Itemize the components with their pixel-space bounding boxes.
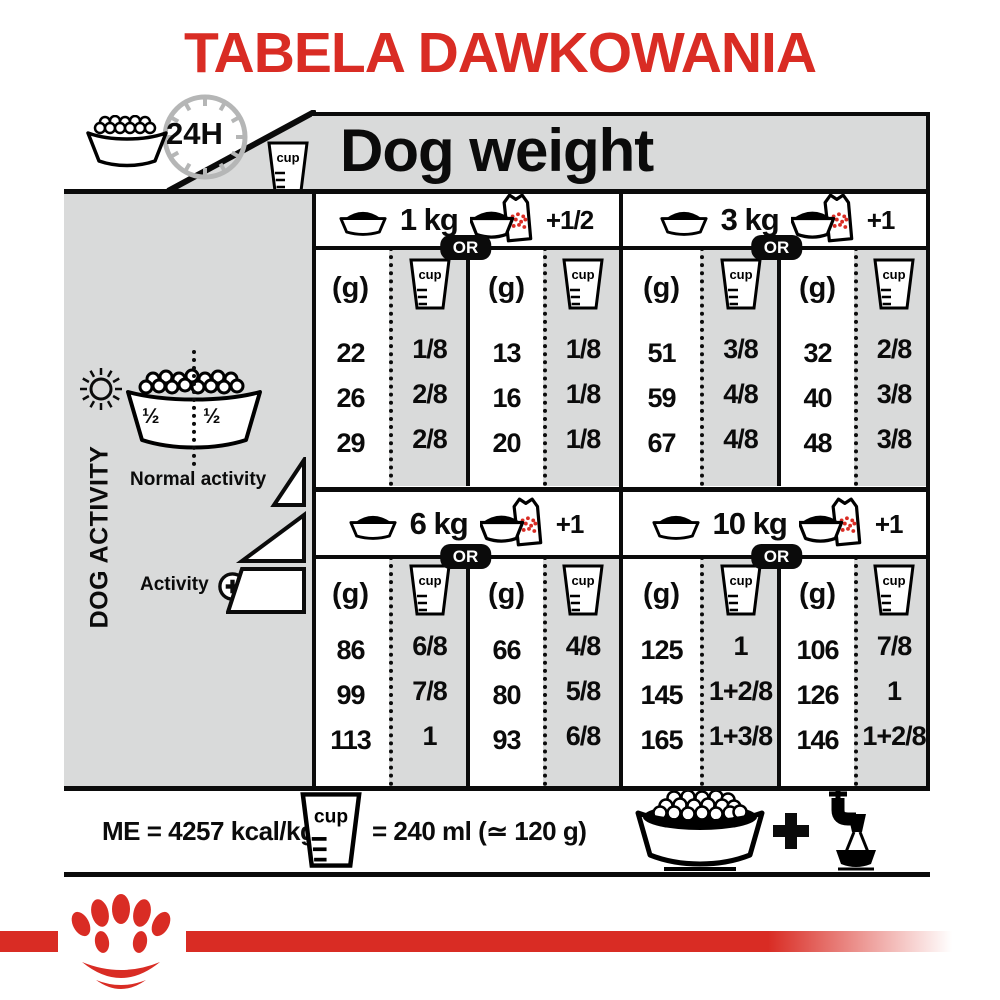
dose-grid: (g) 86 99 113 cup 6/8 7/8 1 (g) 66 80 93…	[312, 556, 619, 786]
quadrant-6kg: 6 kg +1 OR (g) 86 99 113 cup 6/8 7/8 1 (…	[312, 492, 619, 786]
weight-header: 3 kg +1 OR	[623, 193, 930, 247]
activity-label: Activity	[140, 574, 209, 596]
dose-cell: 66	[470, 628, 543, 673]
rule-mid-vertical	[619, 193, 623, 786]
cup-icon: cup	[872, 257, 916, 311]
svg-text:cup: cup	[571, 267, 594, 282]
cup-icon: cup	[264, 140, 312, 194]
dose-cell: 6/8	[547, 714, 619, 759]
cup-icon: cup	[408, 257, 452, 311]
dose-cell: 5/8	[547, 669, 619, 714]
dose-cell: 32	[781, 331, 854, 376]
dose-grid: (g) 51 59 67 cup 3/8 4/8 4/8 (g) 32 40 4…	[623, 247, 930, 486]
dose-cell: 99	[312, 673, 389, 718]
weight-label: 1 kg	[400, 202, 458, 238]
dose-cell: 4/8	[704, 417, 777, 462]
dose-cell: 3/8	[704, 327, 777, 372]
table-left-border	[312, 189, 316, 786]
plus-icon	[770, 810, 812, 852]
dose-cell: 16	[470, 376, 543, 421]
dry-bowl-icon	[659, 204, 709, 237]
grams-header: (g)	[312, 556, 389, 628]
dose-cell: 6/8	[393, 624, 466, 669]
dose-cell: 2/8	[858, 327, 930, 372]
cup-icon: cup	[296, 790, 366, 870]
half-divider-dotted-line	[192, 350, 196, 466]
svg-text:cup: cup	[729, 267, 752, 282]
dose-cell: 1+2/8	[858, 714, 930, 759]
bowl-pouch-icon	[799, 497, 863, 548]
dose-cell: 1/8	[547, 372, 619, 417]
brand-stripe	[0, 931, 58, 952]
dose-grid: (g) 22 26 29 cup 1/8 2/8 2/8 (g) 13 16 2…	[312, 247, 619, 486]
weight-header: 10 kg +1 OR	[623, 492, 930, 556]
dose-cell: 1/8	[393, 327, 466, 372]
bowl-pouch-icon	[791, 193, 855, 244]
or-badge: OR	[751, 235, 803, 260]
bowl-pouch-icon	[480, 497, 544, 548]
dose-cell: 7/8	[393, 669, 466, 714]
dose-cell: 165	[623, 718, 700, 763]
dose-cell: 7/8	[858, 624, 930, 669]
cup-icon: cup	[872, 563, 916, 617]
dose-cell: 22	[312, 331, 389, 376]
half-left-label: ½	[142, 405, 160, 429]
svg-text:cup: cup	[314, 807, 348, 828]
dose-cell: 3/8	[858, 372, 930, 417]
svg-text:cup: cup	[418, 573, 441, 588]
page-title: TABELA DAWKOWANIA	[0, 20, 1000, 86]
weight-label: 3 kg	[721, 202, 779, 238]
weight-header: 1 kg +1/2 OR	[312, 193, 619, 247]
cup-icon: cup	[561, 257, 605, 311]
table-right-border	[926, 112, 930, 786]
weight-header: 6 kg +1 OR	[312, 492, 619, 556]
dose-cell: 40	[781, 376, 854, 421]
cup-icon: cup	[719, 257, 763, 311]
cup-icon: cup	[561, 563, 605, 617]
moon-icon	[264, 370, 300, 410]
dose-cell: 1+2/8	[704, 669, 777, 714]
grams-header: (g)	[623, 247, 700, 325]
dose-cell: 4/8	[704, 372, 777, 417]
footer-top-rule	[64, 786, 930, 791]
weight-label: 6 kg	[410, 506, 468, 542]
dose-cell: 20	[470, 421, 543, 466]
quadrant-10kg: 10 kg +1 OR (g) 125 145 165 cup 1 1+2/8 …	[623, 492, 930, 786]
svg-text:cup: cup	[418, 267, 441, 282]
svg-text:cup: cup	[882, 267, 905, 282]
dose-cell: 1	[393, 714, 466, 759]
dry-bowl-icon	[338, 204, 388, 237]
quadrant-1kg: 1 kg +1/2 OR (g) 22 26 29 cup 1/8 2/8 2/…	[312, 193, 619, 486]
activity-level-ramps	[226, 457, 308, 615]
svg-text:cup: cup	[571, 573, 594, 588]
grams-header: (g)	[623, 556, 700, 628]
weight-label: 10 kg	[713, 506, 787, 542]
svg-text:cup: cup	[729, 573, 752, 588]
dose-cell: 1/8	[547, 417, 619, 462]
water-faucet-icon	[818, 786, 900, 874]
dose-cell: 51	[623, 331, 700, 376]
dose-cell: 1+3/8	[704, 714, 777, 759]
dose-cell: 106	[781, 628, 854, 673]
dose-cell: 2/8	[393, 372, 466, 417]
svg-text:cup: cup	[882, 573, 905, 588]
dose-cell: 93	[470, 718, 543, 763]
dose-cell: 86	[312, 628, 389, 673]
pouch-extra-label: +1/2	[546, 205, 593, 236]
pouch-extra-label: +1	[556, 509, 584, 540]
dose-cell: 4/8	[547, 624, 619, 669]
dry-bowl-icon	[651, 508, 701, 541]
dose-cell: 1	[704, 624, 777, 669]
dose-cell: 2/8	[393, 417, 466, 462]
24h-label: 24H	[166, 116, 223, 152]
pouch-extra-label: +1	[867, 205, 895, 236]
royal-canin-paw-logo	[54, 892, 188, 1000]
dose-cell: 3/8	[858, 417, 930, 462]
cup-icon: cup	[408, 563, 452, 617]
dose-cell: 1/8	[547, 327, 619, 372]
dog-weight-label: Dog weight	[340, 116, 653, 185]
dose-cell: 48	[781, 421, 854, 466]
dose-cell: 145	[623, 673, 700, 718]
dose-cell: 113	[312, 718, 389, 763]
cup-icon: cup	[719, 563, 763, 617]
pouch-extra-label: +1	[875, 509, 903, 540]
or-badge: OR	[751, 544, 803, 569]
svg-text:cup: cup	[276, 150, 299, 165]
cup-equivalence-label: = 240 ml (≃ 120 g)	[372, 816, 586, 847]
dose-cell: 26	[312, 376, 389, 421]
kibble-bowl-icon	[630, 789, 770, 873]
grams-header: (g)	[312, 247, 389, 325]
dose-grid: (g) 125 145 165 cup 1 1+2/8 1+3/8 (g) 10…	[623, 556, 930, 786]
dose-cell: 1	[858, 669, 930, 714]
brand-stripe	[186, 931, 952, 952]
half-right-label: ½	[203, 405, 221, 429]
rule-header-bottom	[64, 189, 930, 194]
or-badge: OR	[440, 544, 492, 569]
dose-cell: 126	[781, 673, 854, 718]
me-energy-label: ME = 4257 kcal/kg	[102, 816, 315, 847]
dose-cell: 13	[470, 331, 543, 376]
dose-cell: 67	[623, 421, 700, 466]
or-badge: OR	[440, 235, 492, 260]
dry-bowl-icon	[348, 508, 398, 541]
dose-cell: 59	[623, 376, 700, 421]
kibble-bowl-icon	[82, 115, 172, 169]
dog-activity-axis-label: DOG ACTIVITY	[86, 446, 115, 629]
quadrant-3kg: 3 kg +1 OR (g) 51 59 67 cup 3/8 4/8 4/8 …	[623, 193, 930, 486]
footer-bottom-rule	[64, 872, 930, 877]
feeding-guide-page: TABELA DAWKOWANIA 24H cup Dog weight	[0, 0, 1000, 1000]
dose-cell: 125	[623, 628, 700, 673]
dose-cell: 80	[470, 673, 543, 718]
dose-cell: 29	[312, 421, 389, 466]
dose-cell: 146	[781, 718, 854, 763]
